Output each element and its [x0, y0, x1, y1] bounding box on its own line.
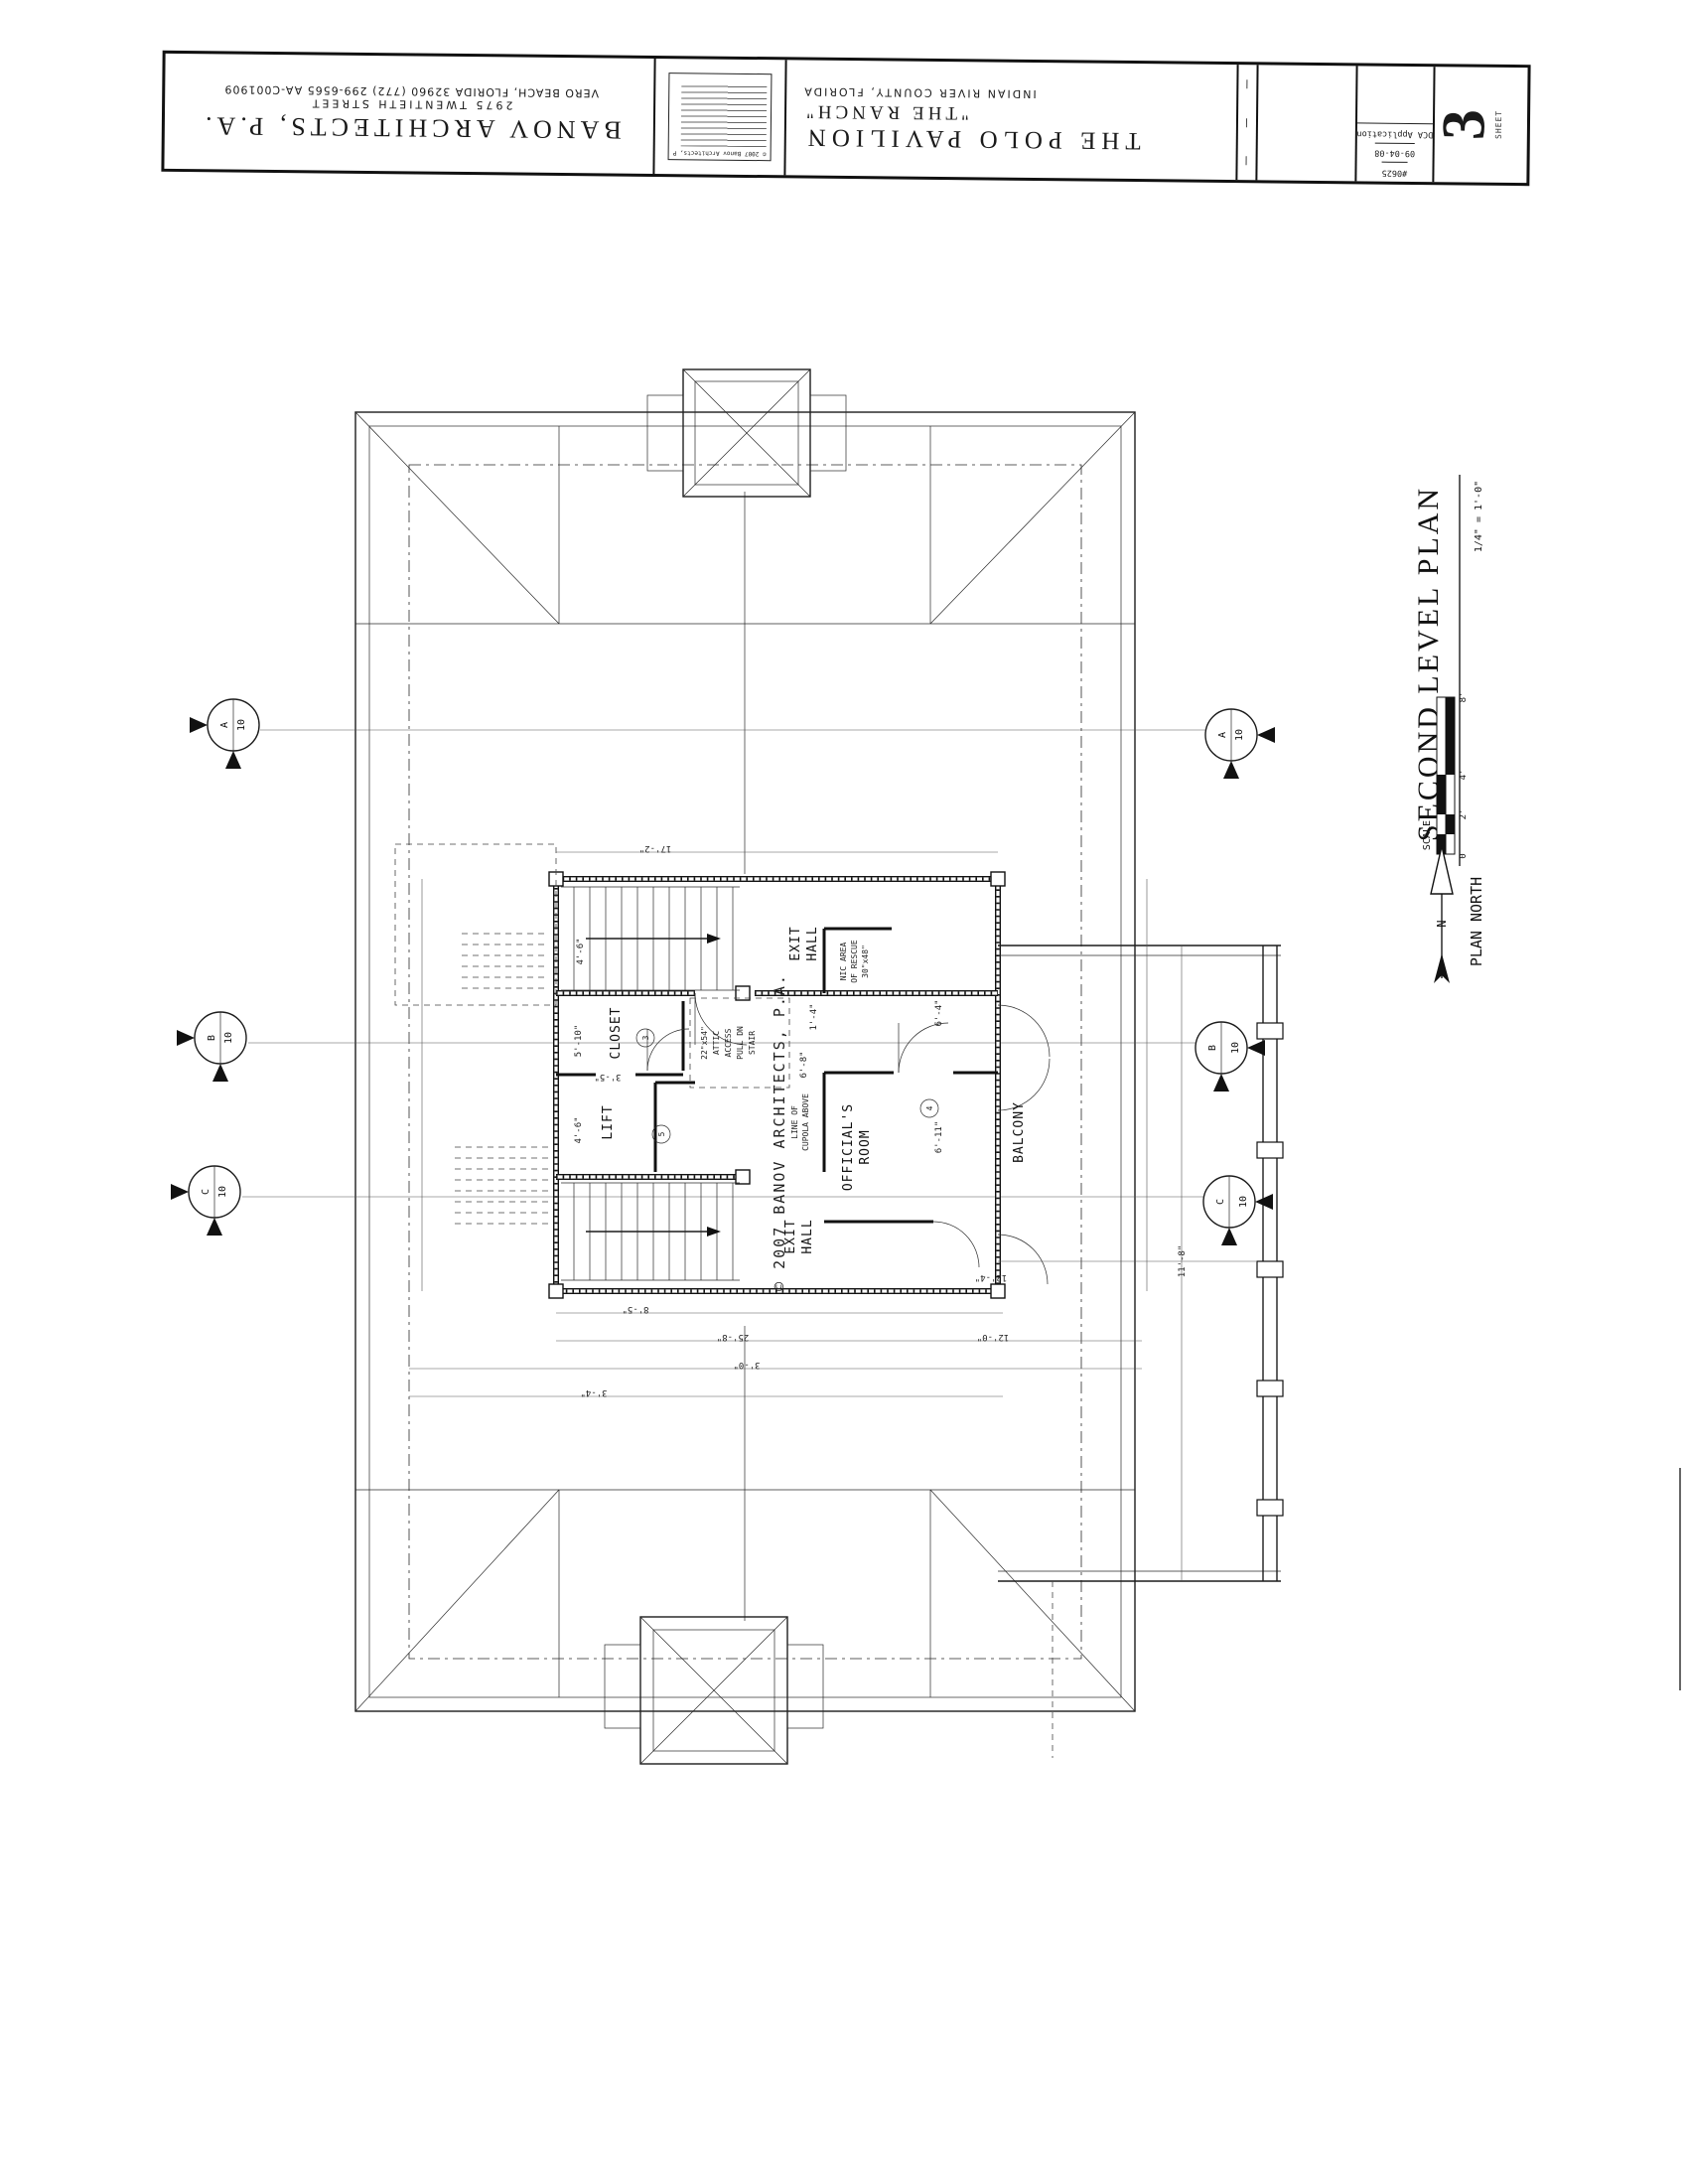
rescue-note: 30"x48"	[861, 945, 870, 978]
door-tag: 5	[657, 1131, 666, 1136]
room-label-exit-hall-lower: HALL	[800, 1219, 815, 1253]
dimension-label: 6'-4"	[934, 999, 944, 1026]
section-marker-a-left: A 10	[190, 699, 259, 769]
dimension-label: 4'-6"	[576, 938, 586, 964]
scale-label: SCALE:	[1422, 814, 1433, 850]
dimension-label: 6'-8"	[799, 1051, 809, 1078]
section-sheet: 10	[236, 719, 247, 731]
cupola-bottom	[605, 1617, 823, 1764]
section-marker-a-right: A 10	[1205, 709, 1275, 779]
section-sheet: 10	[217, 1186, 228, 1198]
room-labels: EXIT HALL CLOSET LIFT OFFICIAL'S ROOM EX…	[601, 926, 1027, 1253]
dimension-label: 1'-4"	[809, 1003, 819, 1030]
dimension-label: 8'-5"	[622, 1304, 648, 1314]
north-label: PLAN NORTH	[1468, 877, 1485, 966]
section-marker-b-left: B 10	[177, 1012, 246, 1082]
room-label-exit-hall-upper: EXIT	[788, 926, 803, 960]
section-markers: A 10 B 10 C 10	[171, 699, 1275, 1245]
floor-plan-drawing: 17'-2" 5'-10" 3'-5" 4'-6" 4'-6" 1'-4" 6'…	[0, 0, 1688, 2184]
north-arrow: N PLAN NORTH	[1431, 846, 1485, 983]
stair-lower	[561, 1183, 740, 1280]
scale-tick: 8'	[1459, 692, 1469, 703]
scale-tick: 2'	[1459, 809, 1469, 820]
attic-note: STAIR	[748, 1031, 757, 1055]
dimension-label: 25'-8"	[717, 1332, 750, 1342]
section-letter: A	[1217, 732, 1228, 738]
section-sheet: 10	[1230, 1042, 1241, 1054]
scale-tick: 4'	[1459, 770, 1469, 781]
dimension-label: 12'-0"	[977, 1332, 1010, 1342]
plan-scale-note: 1/4" = 1'-0"	[1474, 481, 1484, 552]
dimension-label: 11'-8"	[1178, 1245, 1188, 1278]
roof-outline	[355, 412, 1135, 1711]
section-letter: C	[1215, 1199, 1226, 1205]
room-label-officials-room: ROOM	[858, 1129, 873, 1164]
attic-note: ATTIC	[712, 1031, 721, 1055]
cupola-note: CUPOLA ABOVE	[801, 1093, 810, 1151]
stair-upper	[561, 887, 740, 990]
section-letter: B	[1207, 1045, 1218, 1051]
cupola-note: LINE OF	[790, 1105, 799, 1139]
section-marker-c-left: C 10	[171, 1166, 240, 1236]
section-letter: C	[201, 1189, 211, 1195]
room-label-lift: LIFT	[601, 1104, 616, 1139]
north-letter: N	[1435, 920, 1449, 927]
dimension-label: 17'-2"	[639, 843, 672, 853]
drawing-sheet: SHEET 3 #0625 09-04-08 DCA Application T…	[0, 0, 1688, 2184]
attic-note: ACCESS	[724, 1028, 733, 1057]
cupola-top	[647, 369, 846, 497]
section-letter: B	[207, 1035, 217, 1041]
door-tag: 4	[925, 1105, 934, 1110]
dimension-label: 3'-0"	[733, 1360, 760, 1370]
section-cut-lines	[242, 730, 1205, 1197]
dimension-labels: 17'-2" 5'-10" 3'-5" 4'-6" 4'-6" 1'-4" 6'…	[574, 843, 1188, 1397]
dimension-label: 3'-4"	[580, 1387, 607, 1397]
dimension-label: 12'-4"	[975, 1272, 1008, 1282]
rescue-note: OF RESCUE	[850, 940, 859, 983]
dimension-label: 4'-6"	[574, 1116, 584, 1143]
section-letter: A	[219, 722, 230, 728]
scale-tick: 0	[1459, 853, 1469, 858]
balcony-structure	[998, 946, 1283, 1758]
dimension-label: 5'-10"	[574, 1025, 584, 1058]
room-label-balcony: BALCONY	[1012, 1101, 1027, 1163]
attic-note: PULL DN	[736, 1026, 745, 1060]
room-label-officials-room: OFFICIAL'S	[841, 1103, 856, 1191]
section-sheet: 10	[1238, 1196, 1249, 1208]
dimension-label: 3'-5"	[594, 1072, 621, 1082]
dimension-label: 6'-11"	[934, 1121, 944, 1154]
door-tag: 3	[641, 1035, 650, 1040]
room-label-exit-hall-upper: HALL	[805, 926, 820, 960]
section-sheet: 10	[1234, 729, 1245, 741]
copyright-watermark: © 2007 BANOV ARCHITECTS, P.A.	[771, 973, 788, 1291]
room-label-closet: CLOSET	[609, 1007, 624, 1060]
attic-note: 22"x54"	[700, 1026, 709, 1060]
rescue-note: NIC AREA	[839, 943, 848, 981]
section-sheet: 10	[223, 1032, 234, 1044]
section-marker-b-right: B 10	[1196, 1022, 1265, 1092]
